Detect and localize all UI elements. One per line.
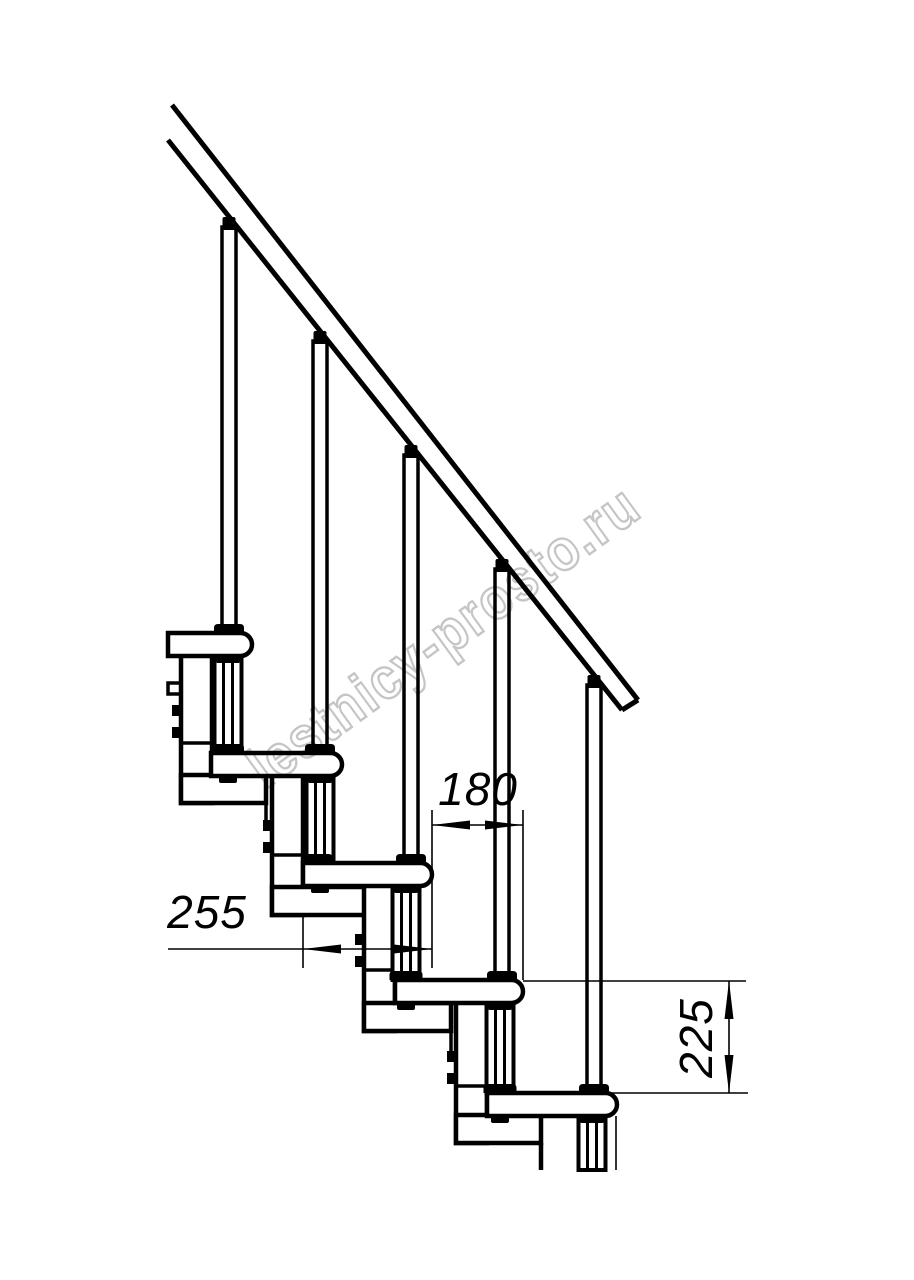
dimension-label-255: 255 (166, 886, 247, 938)
bolt-icon (172, 727, 181, 738)
pipe-2 (307, 776, 334, 863)
arrow-left-icon (303, 945, 341, 954)
dimension-label-225: 225 (670, 998, 722, 1079)
pipe-3 (393, 886, 420, 980)
pipe-4 (487, 1003, 514, 1093)
dimension-label-180: 180 (438, 763, 518, 815)
bolt-icon (447, 1073, 456, 1084)
staircase-side-view-drawing: 255 180 225 lestnicy-prosto.ru (0, 0, 914, 1280)
arrow-up-icon (725, 981, 734, 1019)
bolt-icon (172, 705, 181, 716)
pipe-5-cut (579, 1116, 606, 1170)
step-5 (487, 1093, 617, 1116)
step-3 (303, 863, 432, 886)
bolt-icon (263, 820, 272, 831)
bolt-icon (355, 934, 364, 945)
pipe-2-flange (304, 854, 333, 863)
nut-under-step-4 (397, 1003, 415, 1010)
arrow-down-icon (725, 1055, 734, 1093)
bolt-icon (447, 1051, 456, 1062)
bolt-icon (263, 842, 272, 853)
nut-under-step-5 (491, 1116, 509, 1123)
step-4 (395, 980, 523, 1003)
pipe-1 (215, 656, 242, 753)
handrail-end-cap (622, 700, 638, 710)
baluster-1 (214, 217, 244, 633)
arrow-left-icon (432, 821, 470, 830)
pipe-3-flange (390, 971, 423, 980)
nut-under-step-2 (219, 776, 237, 783)
baluster-5 (579, 675, 609, 1093)
step-1 (168, 633, 252, 656)
dimension-225: 225 (523, 981, 748, 1093)
nut-under-step-3 (311, 886, 329, 893)
bolt-icon (355, 956, 364, 967)
pipe-4-flange (484, 1084, 517, 1093)
